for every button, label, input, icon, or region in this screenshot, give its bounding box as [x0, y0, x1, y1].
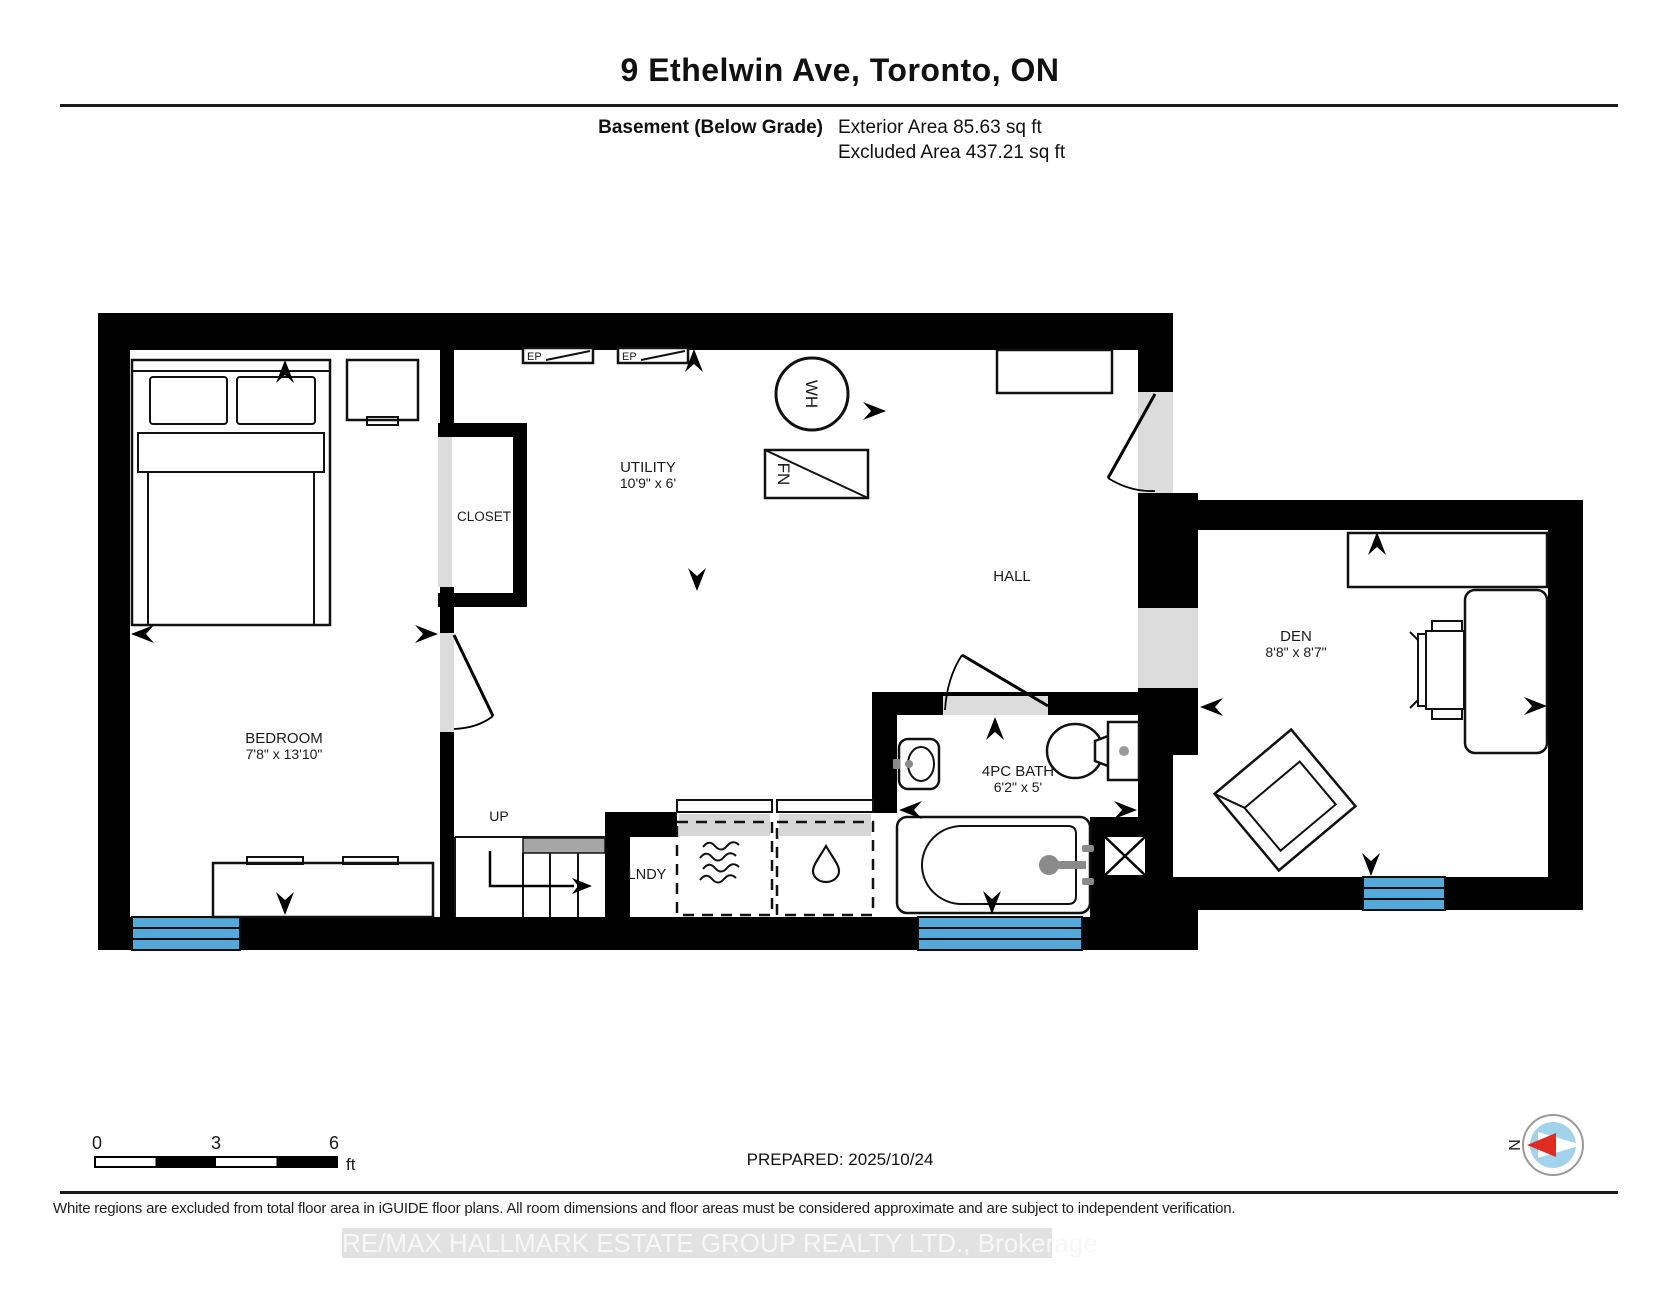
closet-slider-opening	[438, 437, 452, 587]
electrical-panel-1: EP	[523, 348, 593, 363]
scale-tick-3: 3	[211, 1133, 221, 1153]
compass-north-label: N	[1507, 1139, 1524, 1151]
door-arrow-icon	[415, 625, 438, 643]
furnace-label: FN	[774, 463, 793, 486]
door-arrow-icon	[986, 717, 1004, 740]
washer	[677, 800, 772, 915]
bedroom-door-opening	[440, 633, 454, 732]
stairs-up: UP	[455, 808, 605, 917]
bedroom-door-swing	[454, 635, 493, 729]
footer-divider	[60, 1191, 1618, 1194]
tub-faucet	[1058, 861, 1086, 869]
washer-icon	[700, 842, 739, 882]
floor-plan-page: 9 Ethelwin Ave, Toronto, ON Basement (Be…	[0, 0, 1680, 1299]
room-label-hall: HALL	[993, 568, 1031, 585]
window-well-den	[1363, 877, 1445, 910]
window-arrow-icon	[131, 625, 154, 643]
brokerage-watermark: RE/MAX HALLMARK ESTATE GROUP REALTY LTD.…	[342, 1228, 1052, 1258]
opening-arrow-icon	[863, 402, 886, 420]
passage-arrow-icon	[1200, 698, 1223, 716]
scale-unit: ft	[346, 1155, 356, 1174]
den-desk	[1465, 590, 1547, 753]
opening-arrow-icon	[1114, 801, 1137, 819]
den-passage-opening	[1138, 608, 1198, 688]
scale-bar: 0 3 6 ft	[92, 1133, 356, 1174]
stair-direction-line	[490, 851, 574, 886]
room-label-bedroom: BEDROOM	[245, 730, 323, 747]
dresser	[213, 857, 433, 917]
furnace: FN	[765, 450, 868, 498]
opening-arrow-icon	[688, 568, 706, 591]
window-well-bedroom	[132, 917, 240, 950]
scale-tick-6: 6	[329, 1133, 339, 1153]
electrical-panel-1-label: EP	[527, 351, 542, 363]
room-dims-den: 8'8" x 8'7"	[1265, 644, 1326, 660]
tub-drain	[1039, 855, 1059, 875]
door-swings	[454, 394, 1155, 729]
bed	[132, 360, 330, 625]
stair-landing-tread	[523, 838, 605, 853]
hall-shelf	[997, 350, 1112, 393]
room-label-den: DEN	[1280, 628, 1312, 645]
scale-tick-0: 0	[92, 1133, 102, 1153]
shaft-box	[1103, 835, 1147, 877]
compass: N	[1507, 1115, 1583, 1175]
floor-plan-svg: UP EP EP	[0, 0, 1680, 1299]
bath-door-opening	[943, 696, 1048, 715]
stairs-up-label: UP	[489, 808, 508, 824]
stair-direction-arrow-icon	[572, 878, 592, 894]
prepared-date: PREPARED: 2025/10/24	[747, 1150, 934, 1170]
toilet	[1047, 722, 1139, 780]
disclaimer-text: White regions are excluded from total fl…	[53, 1200, 1235, 1217]
dryer-drop-icon	[813, 846, 839, 882]
armchair	[1215, 730, 1356, 871]
room-label-laundry: LNDY	[628, 867, 667, 883]
dryer	[777, 800, 873, 915]
water-heater: WH	[776, 358, 848, 430]
office-chair	[1410, 621, 1464, 719]
room-label-bath: 4PC BATH	[982, 763, 1054, 780]
electrical-panel-2-label: EP	[622, 351, 637, 363]
window-arrow-icon	[1362, 853, 1380, 876]
window-well-bath	[918, 917, 1082, 950]
openings	[438, 392, 1198, 732]
bathroom-sink	[893, 739, 939, 789]
water-heater-label: WH	[802, 380, 821, 408]
room-dims-bedroom: 7'8" x 13'10"	[246, 746, 323, 762]
room-dims-bath: 6'2" x 5'	[994, 779, 1042, 795]
room-dims-utility: 10'9" x 6'	[620, 475, 676, 491]
hall-exterior-door-opening	[1138, 392, 1173, 493]
electrical-panel-2: EP	[618, 348, 688, 363]
room-label-utility: UTILITY	[620, 459, 676, 476]
nightstand	[347, 360, 418, 425]
room-label-closet: CLOSET	[457, 509, 511, 524]
